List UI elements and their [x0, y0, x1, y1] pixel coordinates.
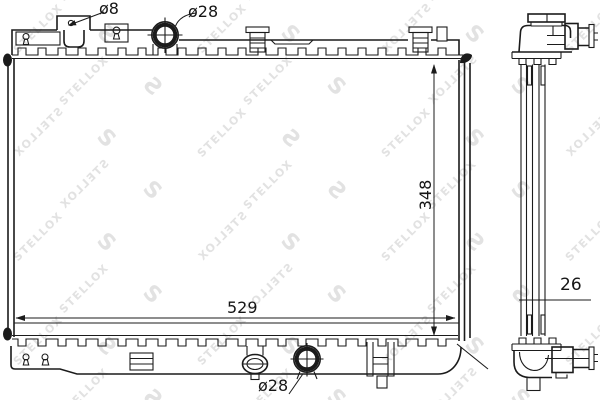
label-height: 348: [418, 172, 434, 218]
bottom-bracket-1: [130, 353, 153, 370]
radiator-drawing-page: SSTELLOXSSTELLOXSSTELLOXSSTELLOXSSTELLOX…: [0, 0, 600, 400]
label-outlet-diameter: ø28: [258, 378, 288, 394]
leader-dia28-bottom: [289, 375, 303, 395]
keyhole-icon: [23, 34, 29, 45]
side-core: [521, 65, 545, 337]
label-width: 529: [227, 300, 258, 316]
keyhole-icon: [23, 354, 29, 365]
front-bottom-tank: [11, 336, 488, 395]
side-view: [512, 14, 598, 391]
side-bottom-tank: [512, 338, 598, 391]
mount-bracket-hole: [57, 16, 90, 47]
keyhole-icon: [42, 354, 49, 365]
bottom-bracket-2: [367, 342, 394, 376]
label-mount-hole-diameter: ø8: [99, 1, 119, 17]
side-top-tank: [512, 14, 598, 65]
front-top-tank: [12, 12, 472, 63]
keyhole-box: [105, 24, 128, 42]
corner-edge: [457, 344, 488, 369]
outlet-pipe-ring: [289, 343, 324, 394]
top-tab: [437, 27, 447, 41]
label-inlet-diameter: ø28: [188, 4, 218, 20]
clip-bracket-2: [409, 27, 432, 52]
radiator-line-drawing: [0, 0, 600, 400]
bottom-foot: [377, 376, 387, 388]
label-core-thickness: 26: [560, 277, 582, 294]
dimension-26: [519, 296, 591, 305]
